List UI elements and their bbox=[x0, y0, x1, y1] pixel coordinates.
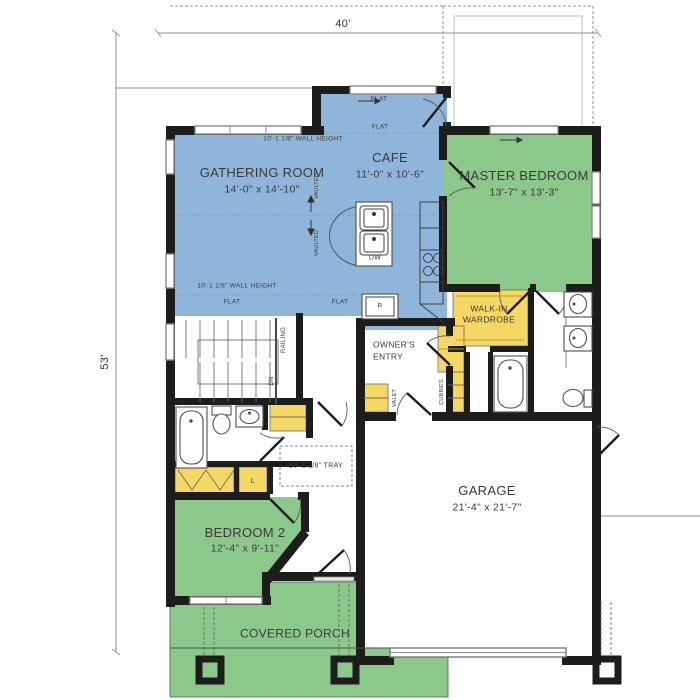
wardrobe-label-line1: WALK-IN bbox=[470, 305, 507, 314]
dishwasher-label: DW bbox=[369, 254, 381, 261]
front-door-threshold bbox=[314, 577, 354, 581]
hall-niche-cabinet bbox=[270, 404, 306, 431]
floor-plan-drawing bbox=[0, 0, 700, 700]
left-window-1 bbox=[166, 140, 174, 174]
porch-pier-right bbox=[596, 659, 618, 681]
master-side-window-2 bbox=[592, 206, 600, 238]
flat-ceiling-note-cafe: FLAT bbox=[372, 125, 389, 132]
master-toilet-tank bbox=[584, 390, 592, 407]
cafe-window bbox=[350, 86, 436, 94]
covered-porch-label: COVERED PORCH bbox=[240, 628, 350, 641]
garage-door bbox=[390, 648, 566, 657]
left-window-3 bbox=[166, 324, 174, 360]
staircase[interactable] bbox=[186, 318, 278, 404]
depth-dimension-label: 53' bbox=[100, 354, 112, 369]
flat-ceiling-note-left: FLAT bbox=[224, 300, 241, 307]
flat-ceiling-note-mid: FLAT bbox=[332, 300, 349, 307]
vaulted-note-upper: VAULTED bbox=[315, 173, 321, 199]
cafe-dims: 11'-0" x 10'-6" bbox=[356, 169, 424, 180]
width-dimension-label: 40' bbox=[335, 19, 350, 31]
railing-label: RAILING bbox=[281, 327, 287, 353]
master-bedroom-label: MASTER BEDROOM bbox=[459, 169, 588, 183]
refrigerator-label: R bbox=[378, 304, 383, 311]
tray-ceiling-note: 10'-1 1/8" TRAY bbox=[289, 462, 343, 469]
left-window-2 bbox=[166, 254, 174, 288]
owners-entry-label-line1: OWNER'S bbox=[373, 341, 415, 350]
master-toilet-bowl bbox=[563, 390, 583, 407]
owners-entry-label-line2: ENTRY bbox=[373, 353, 403, 362]
wall-height-note-top: 10'-1 1/8" WALL HEIGHT bbox=[263, 137, 342, 144]
toilet2-bowl bbox=[213, 414, 230, 434]
master-bedroom-dims: 13'-7" x 13'-3" bbox=[489, 187, 558, 198]
garage-label: GARAGE bbox=[458, 484, 515, 498]
vaulted-note-lower: VAULTED bbox=[315, 230, 321, 256]
wardrobe-label-line2: WARDROBE bbox=[463, 316, 515, 325]
master-top-window bbox=[490, 126, 558, 134]
stairs-down-label: DN bbox=[269, 376, 275, 385]
gathering-room-dims: 14'-0" x 14'-10" bbox=[224, 184, 299, 195]
cafe-label: CAFE bbox=[372, 151, 408, 165]
cubbies-label: CUBBIES bbox=[440, 379, 446, 405]
garage-dims: 21'-4" x 21'-7" bbox=[452, 502, 521, 513]
valet-label: VALET bbox=[393, 389, 399, 407]
gathering-window bbox=[195, 126, 301, 134]
bedroom2-closet bbox=[175, 467, 234, 494]
floor-plan: 40' 53' GATHERING ROOM 14'-0" x 14'-10" … bbox=[0, 0, 700, 700]
bath2-fixtures bbox=[176, 406, 263, 468]
linen-closet-label: L bbox=[251, 477, 255, 485]
master-bedroom-area bbox=[443, 130, 597, 292]
gathering-room-label: GATHERING ROOM bbox=[200, 166, 325, 180]
bedroom2-dims: 12'-4" x 9'-11" bbox=[211, 543, 279, 554]
master-side-window-1 bbox=[592, 172, 600, 204]
wall-height-note-bottom: 10'-1 1/8" WALL HEIGHT bbox=[197, 284, 276, 291]
bedroom2-label: BEDROOM 2 bbox=[205, 526, 286, 540]
flat-ceiling-note-top: FLAT bbox=[371, 97, 388, 104]
